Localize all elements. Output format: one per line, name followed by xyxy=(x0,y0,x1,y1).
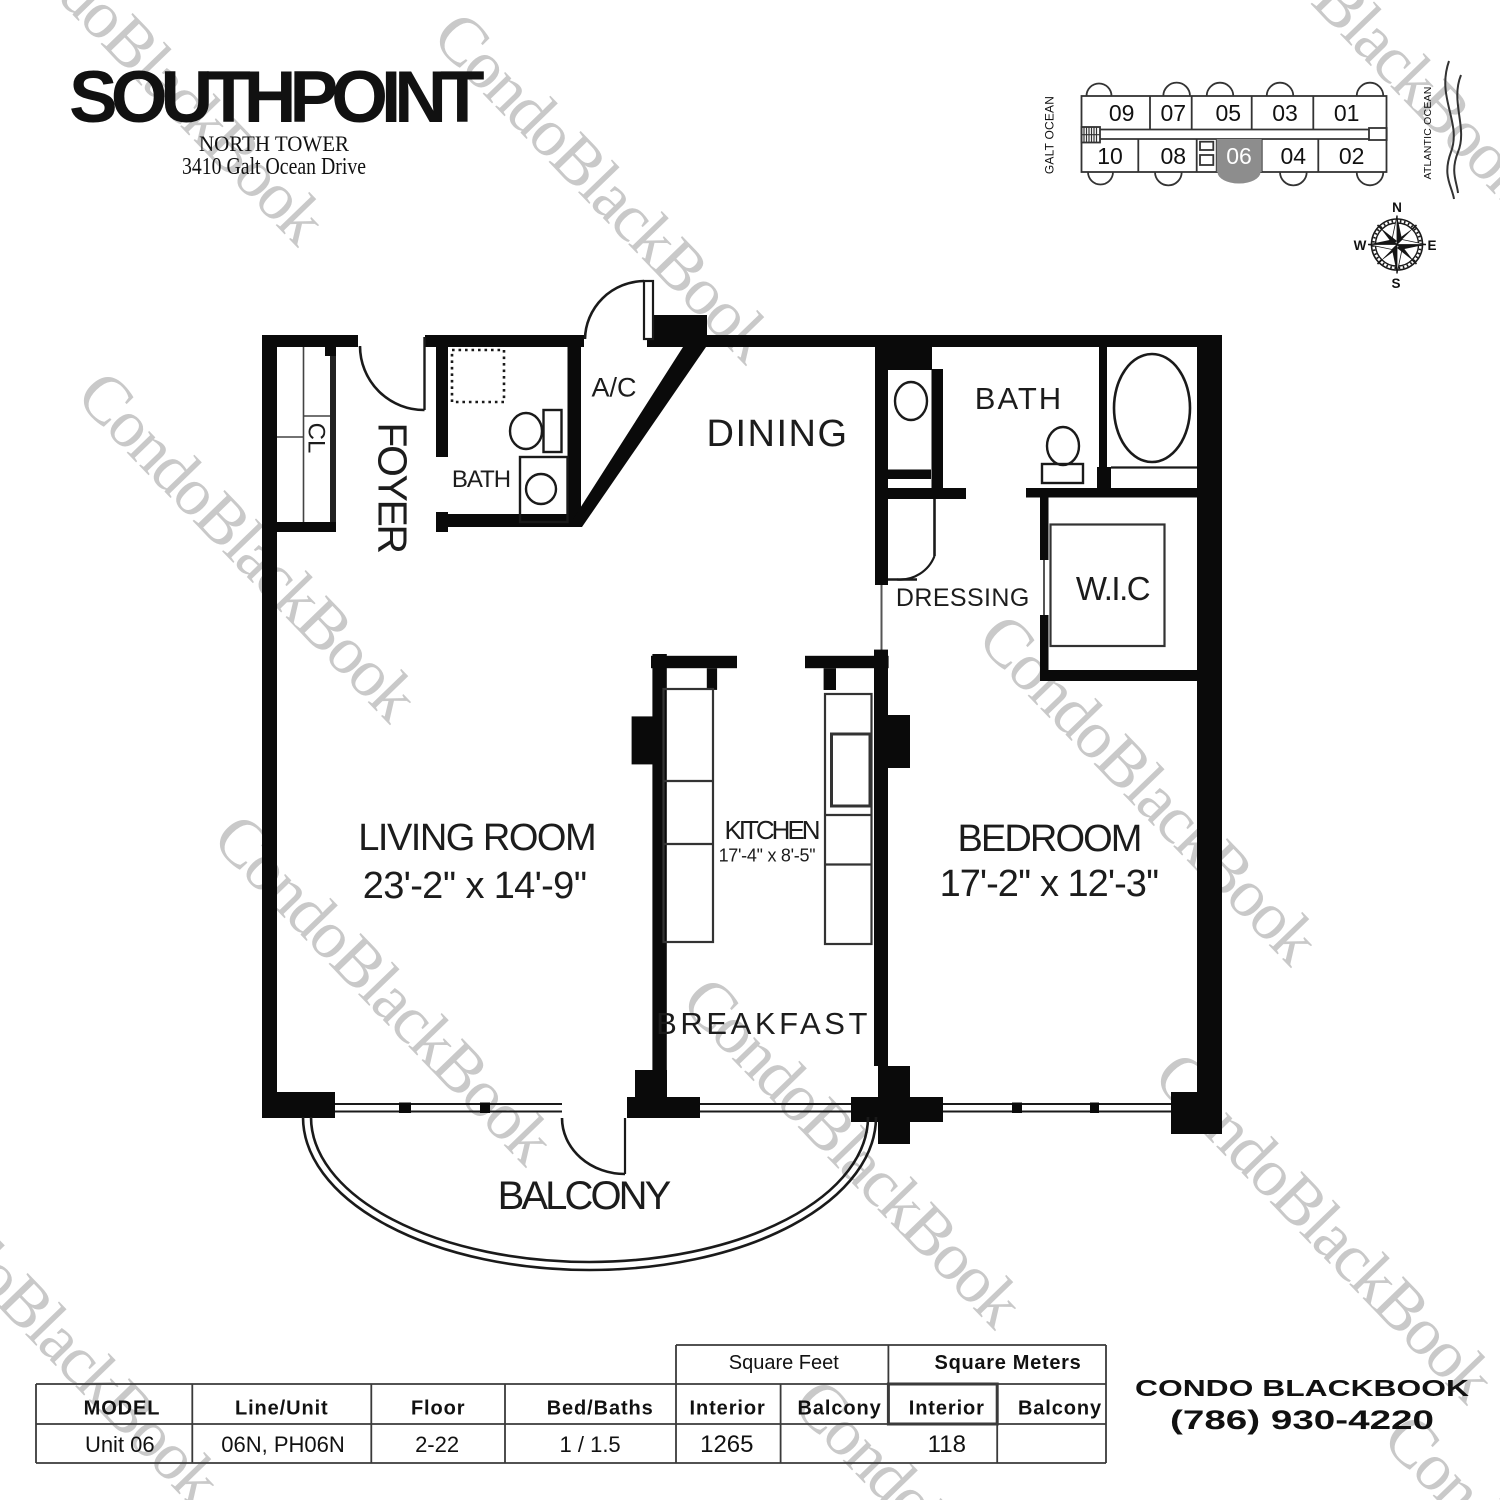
svg-text:BREAKFAST: BREAKFAST xyxy=(656,1006,871,1041)
svg-text:Unit 06: Unit 06 xyxy=(85,1432,155,1457)
svg-text:BATH: BATH xyxy=(975,381,1063,416)
svg-text:1265: 1265 xyxy=(700,1431,753,1458)
svg-text:N: N xyxy=(1392,200,1402,215)
svg-text:E: E xyxy=(1427,238,1436,253)
svg-text:BEDROOM: BEDROOM xyxy=(957,818,1140,860)
svg-text:08: 08 xyxy=(1161,143,1187,169)
svg-text:05: 05 xyxy=(1216,100,1242,126)
svg-text:02: 02 xyxy=(1339,143,1365,169)
svg-text:GALT OCEAN: GALT OCEAN xyxy=(1043,96,1057,174)
svg-text:NORTH TOWER: NORTH TOWER xyxy=(199,131,349,156)
svg-text:Floor: Floor xyxy=(411,1398,466,1420)
svg-text:MODEL: MODEL xyxy=(84,1398,161,1420)
svg-text:ATLANTIC OCEAN: ATLANTIC OCEAN xyxy=(1422,86,1434,179)
svg-text:10: 10 xyxy=(1097,143,1123,169)
svg-text:A/C: A/C xyxy=(591,373,636,403)
svg-text:DRESSING: DRESSING xyxy=(896,584,1030,612)
svg-text:06N, PH06N: 06N, PH06N xyxy=(221,1432,345,1457)
svg-text:118: 118 xyxy=(928,1431,966,1458)
svg-text:3410 Galt Ocean Drive: 3410 Galt Ocean Drive xyxy=(182,154,366,180)
svg-text:W.I.C: W.I.C xyxy=(1076,570,1150,607)
svg-text:07: 07 xyxy=(1161,100,1187,126)
svg-text:S: S xyxy=(1391,276,1400,291)
svg-text:17'-2'' x 12'-3'': 17'-2'' x 12'-3'' xyxy=(940,863,1159,905)
svg-text:04: 04 xyxy=(1281,143,1307,169)
svg-text:Balcony: Balcony xyxy=(1018,1398,1102,1420)
svg-text:SOUTHPOINT: SOUTHPOINT xyxy=(69,57,484,138)
svg-text:Interior: Interior xyxy=(690,1398,766,1420)
svg-text:CONDO BLACKBOOK: CONDO BLACKBOOK xyxy=(1135,1375,1470,1401)
svg-text:06: 06 xyxy=(1226,143,1252,169)
svg-text:23'-2'' x 14'-9'': 23'-2'' x 14'-9'' xyxy=(363,865,587,907)
svg-text:DINING: DINING xyxy=(707,413,849,455)
svg-text:01: 01 xyxy=(1334,100,1360,126)
svg-text:2-22: 2-22 xyxy=(415,1432,459,1457)
svg-text:LIVING ROOM: LIVING ROOM xyxy=(358,817,595,859)
svg-text:W: W xyxy=(1354,238,1367,253)
svg-text:03: 03 xyxy=(1272,100,1298,126)
svg-text:BALCONY: BALCONY xyxy=(498,1174,671,1218)
svg-text:Interior: Interior xyxy=(909,1398,985,1420)
svg-text:CL: CL xyxy=(303,423,330,454)
svg-text:Line/Unit: Line/Unit xyxy=(235,1398,329,1420)
svg-text:09: 09 xyxy=(1109,100,1135,126)
svg-text:(786) 930-4220: (786) 930-4220 xyxy=(1170,1405,1434,1435)
svg-text:KITCHEN: KITCHEN xyxy=(724,815,818,845)
svg-text:1 / 1.5: 1 / 1.5 xyxy=(560,1432,621,1457)
svg-text:Square Meters: Square Meters xyxy=(935,1352,1082,1374)
svg-text:BATH: BATH xyxy=(452,466,510,493)
svg-text:Balcony: Balcony xyxy=(798,1398,882,1420)
svg-text:Bed/Baths: Bed/Baths xyxy=(547,1398,654,1420)
svg-text:17'-4'' x 8'-5'': 17'-4'' x 8'-5'' xyxy=(719,846,816,866)
svg-text:FOYER: FOYER xyxy=(370,422,416,552)
svg-text:Square Feet: Square Feet xyxy=(729,1352,840,1374)
